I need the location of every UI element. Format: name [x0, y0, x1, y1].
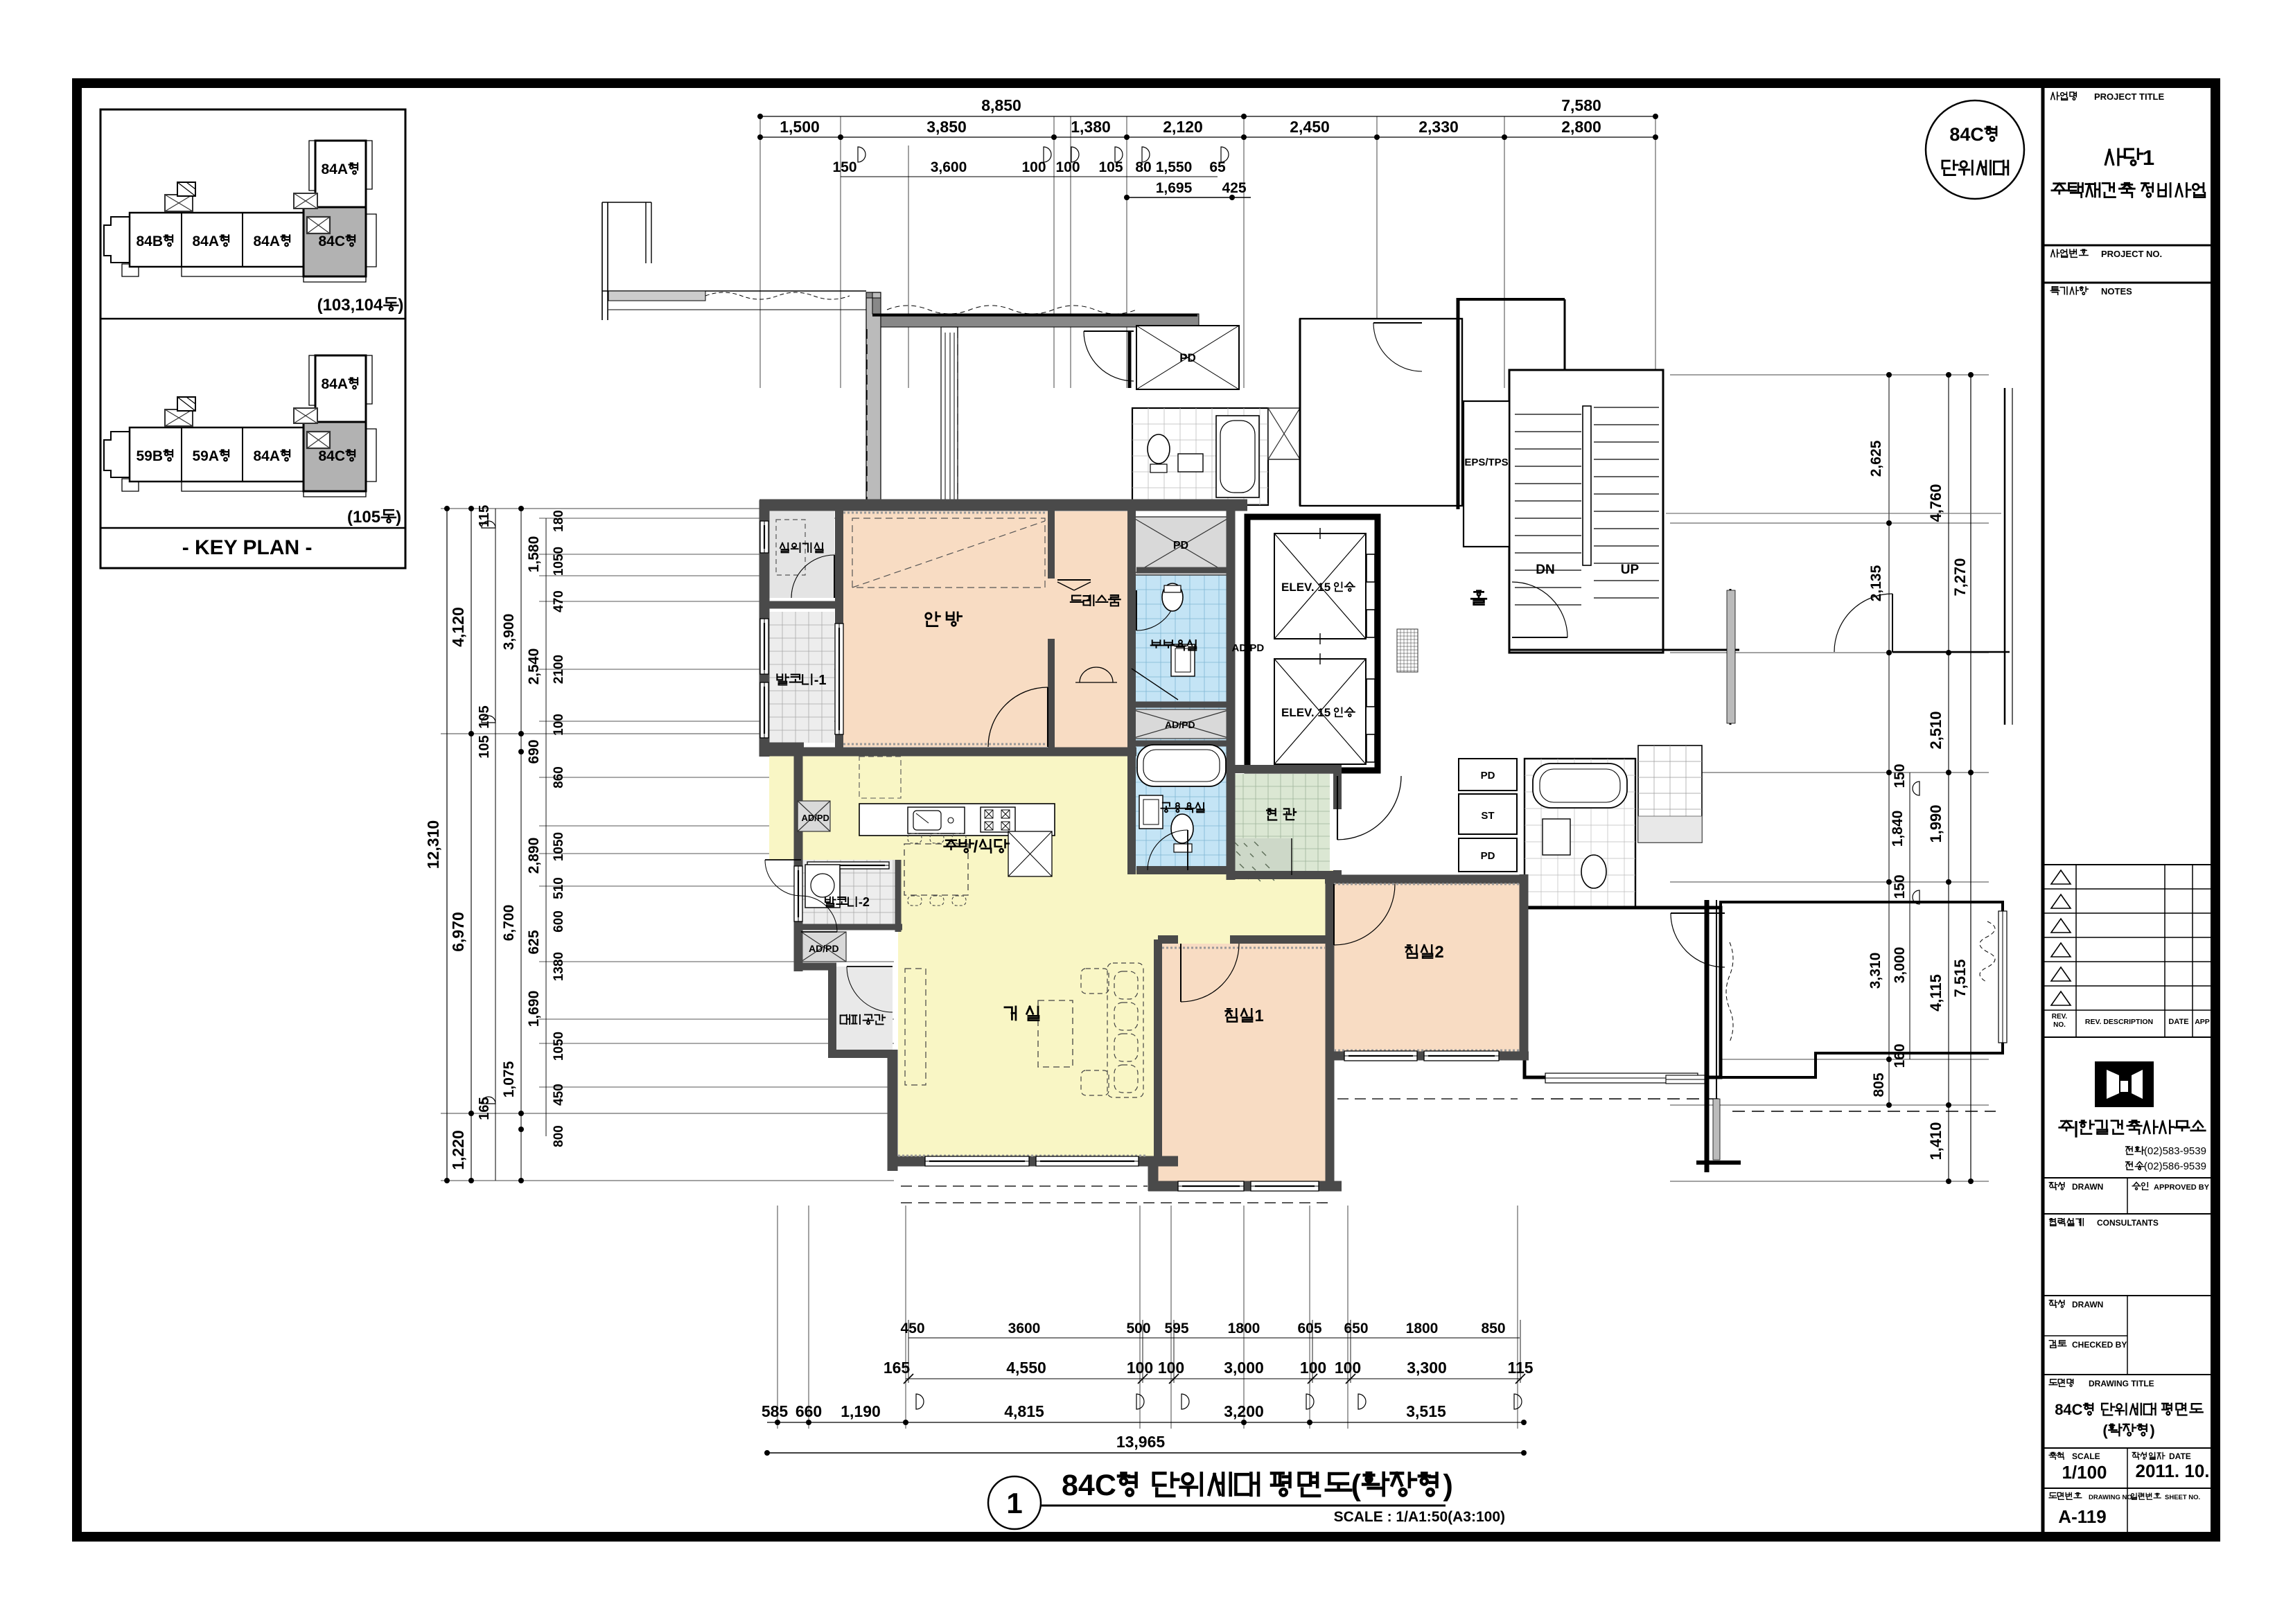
svg-text:APPROVED BY: APPROVED BY — [2154, 1183, 2210, 1192]
svg-text:PD: PD — [1179, 351, 1196, 364]
svg-text:6,700: 6,700 — [501, 905, 517, 942]
svg-text:CHECKED BY: CHECKED BY — [2072, 1340, 2127, 1350]
svg-text:115: 115 — [1507, 1359, 1533, 1377]
svg-text:105: 105 — [1098, 159, 1123, 175]
svg-text:3,300: 3,300 — [1407, 1359, 1447, 1377]
svg-text:3,850: 3,850 — [926, 118, 967, 136]
svg-text:500: 500 — [1126, 1321, 1150, 1336]
svg-text:1,410: 1,410 — [1927, 1122, 1944, 1160]
svg-text:2: 2 — [1434, 943, 1443, 962]
svg-text:7,580: 7,580 — [1561, 96, 1601, 114]
svg-text:100: 100 — [1055, 159, 1080, 175]
svg-text:12,310: 12,310 — [424, 820, 442, 869]
svg-text:450: 450 — [900, 1321, 924, 1336]
svg-text:2,625: 2,625 — [1868, 440, 1884, 477]
svg-text:2,800: 2,800 — [1561, 118, 1601, 136]
svg-text:7,270: 7,270 — [1951, 558, 1969, 596]
svg-text:165: 165 — [477, 1097, 492, 1120]
svg-text:100: 100 — [1021, 159, 1046, 175]
svg-text:SCALE: SCALE — [2072, 1451, 2100, 1461]
svg-text:1,075: 1,075 — [501, 1061, 517, 1097]
svg-text:84C: 84C — [319, 448, 346, 464]
svg-text:1,500: 1,500 — [780, 118, 820, 136]
svg-text:ELEV. 15: ELEV. 15 — [1281, 706, 1330, 719]
svg-text:84C: 84C — [319, 233, 346, 249]
svg-text:REV.: REV. — [2052, 1013, 2068, 1021]
svg-text:(103,104: (103,104 — [317, 296, 383, 315]
svg-text:PROJECT NO.: PROJECT NO. — [2101, 249, 2162, 259]
svg-text:650: 650 — [1344, 1321, 1368, 1336]
svg-text:SCALE : 1/A1:50(A3:100): SCALE : 1/A1:50(A3:100) — [1334, 1509, 1505, 1525]
svg-text:APP: APP — [2195, 1018, 2210, 1026]
svg-text:DATE: DATE — [2169, 1451, 2191, 1461]
svg-text:660: 660 — [796, 1402, 822, 1420]
svg-text:100: 100 — [1158, 1359, 1184, 1377]
svg-text:DRAWING TITLE: DRAWING TITLE — [2089, 1379, 2154, 1388]
svg-text:AD/PD: AD/PD — [802, 813, 829, 823]
svg-text:84A: 84A — [193, 233, 220, 249]
svg-text:59B: 59B — [137, 448, 164, 464]
svg-text:84C: 84C — [1949, 124, 1984, 145]
svg-text:AD/PD: AD/PD — [1165, 719, 1195, 730]
svg-text:2100: 2100 — [552, 655, 566, 684]
svg-text:84A: 84A — [254, 233, 281, 249]
svg-text:6,970: 6,970 — [449, 912, 467, 952]
svg-text:1050: 1050 — [552, 547, 566, 576]
svg-text:1: 1 — [2143, 145, 2154, 170]
svg-text:1/100: 1/100 — [2062, 1462, 2107, 1483]
svg-text:2,510: 2,510 — [1927, 711, 1944, 749]
svg-text:1050: 1050 — [552, 832, 566, 861]
svg-text:DRAWN: DRAWN — [2072, 1300, 2103, 1309]
svg-text:1800: 1800 — [1228, 1321, 1260, 1336]
svg-text:1,840: 1,840 — [1890, 811, 1906, 847]
svg-text:150: 150 — [1892, 764, 1908, 788]
svg-text:DRAWN: DRAWN — [2072, 1182, 2103, 1192]
svg-text:NOTES: NOTES — [2101, 286, 2132, 297]
svg-text:1,190: 1,190 — [841, 1402, 881, 1420]
svg-text:(: ( — [2102, 1422, 2108, 1439]
svg-text:450: 450 — [552, 1084, 566, 1106]
svg-text:3,900: 3,900 — [501, 614, 517, 651]
svg-text:625: 625 — [526, 930, 542, 954]
svg-text:(02)583-9539: (02)583-9539 — [2144, 1145, 2206, 1157]
svg-text:SHEET NO.: SHEET NO. — [2165, 1494, 2200, 1501]
svg-text:2,890: 2,890 — [526, 838, 542, 874]
svg-text:1,580: 1,580 — [526, 536, 542, 573]
svg-text:1,695: 1,695 — [1156, 180, 1193, 196]
svg-text:|: | — [2074, 1118, 2079, 1138]
svg-text:2,120: 2,120 — [1163, 118, 1203, 136]
svg-text:2011. 10.: 2011. 10. — [2136, 1460, 2210, 1481]
svg-text:4,760: 4,760 — [1927, 484, 1944, 522]
svg-text:100: 100 — [1127, 1359, 1153, 1377]
svg-text:84A: 84A — [254, 448, 281, 464]
svg-text:860: 860 — [552, 766, 566, 788]
svg-text:REV. DESCRIPTION: REV. DESCRIPTION — [2085, 1018, 2153, 1026]
svg-text:PD: PD — [1481, 850, 1495, 862]
svg-text:DATE: DATE — [2168, 1018, 2188, 1026]
svg-text:84A: 84A — [322, 376, 349, 392]
svg-text:PD: PD — [1173, 540, 1188, 551]
svg-text:59A: 59A — [193, 448, 220, 464]
svg-text:2,450: 2,450 — [1290, 118, 1330, 136]
svg-text:470: 470 — [552, 590, 566, 612]
svg-text:850: 850 — [1481, 1321, 1505, 1336]
svg-text:1,690: 1,690 — [526, 991, 542, 1027]
svg-text:690: 690 — [526, 739, 542, 764]
svg-text:1,220: 1,220 — [449, 1130, 467, 1170]
svg-text:3600: 3600 — [1008, 1321, 1041, 1336]
svg-text:2,330: 2,330 — [1418, 118, 1459, 136]
svg-text:510: 510 — [552, 877, 566, 899]
svg-text:4,815: 4,815 — [1004, 1402, 1044, 1420]
svg-text:ELEV. 15: ELEV. 15 — [1281, 581, 1330, 594]
svg-text:DN: DN — [1536, 563, 1554, 577]
svg-text:7,515: 7,515 — [1951, 959, 1969, 997]
svg-text:1800: 1800 — [1406, 1321, 1439, 1336]
svg-text:180: 180 — [552, 510, 566, 532]
svg-text:800: 800 — [552, 1125, 566, 1147]
svg-text:100: 100 — [552, 714, 566, 736]
svg-text:PROJECT TITLE: PROJECT TITLE — [2094, 91, 2164, 102]
svg-text:ST: ST — [1481, 810, 1494, 822]
svg-text:AD/PD: AD/PD — [1232, 642, 1265, 654]
svg-text:1050: 1050 — [552, 1032, 566, 1061]
svg-text:(02)586-9539: (02)586-9539 — [2144, 1160, 2206, 1172]
svg-text:160: 160 — [1892, 1043, 1908, 1068]
svg-text:8,850: 8,850 — [981, 96, 1021, 114]
svg-text:3,515: 3,515 — [1406, 1402, 1446, 1420]
svg-text:4,550: 4,550 — [1006, 1359, 1046, 1377]
svg-text:): ) — [2150, 1422, 2154, 1439]
svg-text:1: 1 — [1006, 1487, 1022, 1519]
svg-text:): ) — [1443, 1469, 1453, 1502]
svg-text:PD: PD — [1481, 770, 1495, 782]
svg-text:84C: 84C — [1062, 1469, 1116, 1502]
svg-text:425: 425 — [1222, 180, 1246, 196]
svg-text:4,115: 4,115 — [1927, 974, 1944, 1012]
svg-text:1,990: 1,990 — [1927, 804, 1944, 842]
svg-text:84C: 84C — [2055, 1401, 2082, 1418]
svg-text:/: / — [974, 838, 978, 856]
svg-text:165: 165 — [884, 1359, 911, 1377]
svg-text:4,120: 4,120 — [449, 607, 467, 647]
svg-text:- KEY PLAN -: - KEY PLAN - — [182, 536, 313, 559]
svg-text:EPS/TPS: EPS/TPS — [1464, 457, 1508, 468]
svg-text:605: 605 — [1297, 1321, 1321, 1336]
svg-text:150: 150 — [1892, 874, 1908, 899]
svg-text:UP: UP — [1621, 563, 1640, 577]
svg-text:1,380: 1,380 — [1071, 118, 1111, 136]
svg-text:805: 805 — [1871, 1073, 1887, 1097]
svg-text:84A: 84A — [322, 161, 349, 177]
svg-text:1380: 1380 — [552, 952, 566, 981]
svg-text:115: 115 — [477, 505, 492, 527]
svg-text:600: 600 — [552, 910, 566, 933]
svg-text:100: 100 — [1300, 1359, 1326, 1377]
svg-text:-2: -2 — [859, 895, 870, 909]
svg-text:3,000: 3,000 — [1892, 947, 1908, 984]
svg-text:CONSULTANTS: CONSULTANTS — [2097, 1218, 2159, 1228]
svg-text:1,550: 1,550 — [1156, 159, 1193, 175]
svg-text:3,200: 3,200 — [1224, 1402, 1264, 1420]
svg-text:AD/PD: AD/PD — [809, 943, 839, 954]
svg-text:595: 595 — [1164, 1321, 1188, 1336]
svg-text:100: 100 — [1335, 1359, 1361, 1377]
svg-text:13,965: 13,965 — [1116, 1433, 1166, 1451]
svg-text:A-119: A-119 — [2058, 1506, 2106, 1527]
svg-text:NO.: NO. — [2053, 1021, 2066, 1029]
svg-text:-1: -1 — [814, 673, 827, 688]
svg-text:): ) — [396, 508, 401, 527]
svg-text:2,540: 2,540 — [526, 648, 542, 685]
svg-text:3,310: 3,310 — [1868, 953, 1883, 989]
svg-text:105: 105 — [477, 735, 492, 758]
svg-text:): ) — [398, 296, 403, 315]
svg-text:150: 150 — [832, 159, 856, 175]
svg-text:1: 1 — [1254, 1007, 1263, 1025]
svg-text:84B: 84B — [137, 233, 164, 249]
svg-text:(105: (105 — [347, 508, 380, 527]
svg-text:3,600: 3,600 — [931, 159, 967, 175]
svg-text:3,000: 3,000 — [1224, 1359, 1264, 1377]
svg-text:585: 585 — [762, 1402, 789, 1420]
svg-text:(: ( — [1351, 1469, 1362, 1502]
